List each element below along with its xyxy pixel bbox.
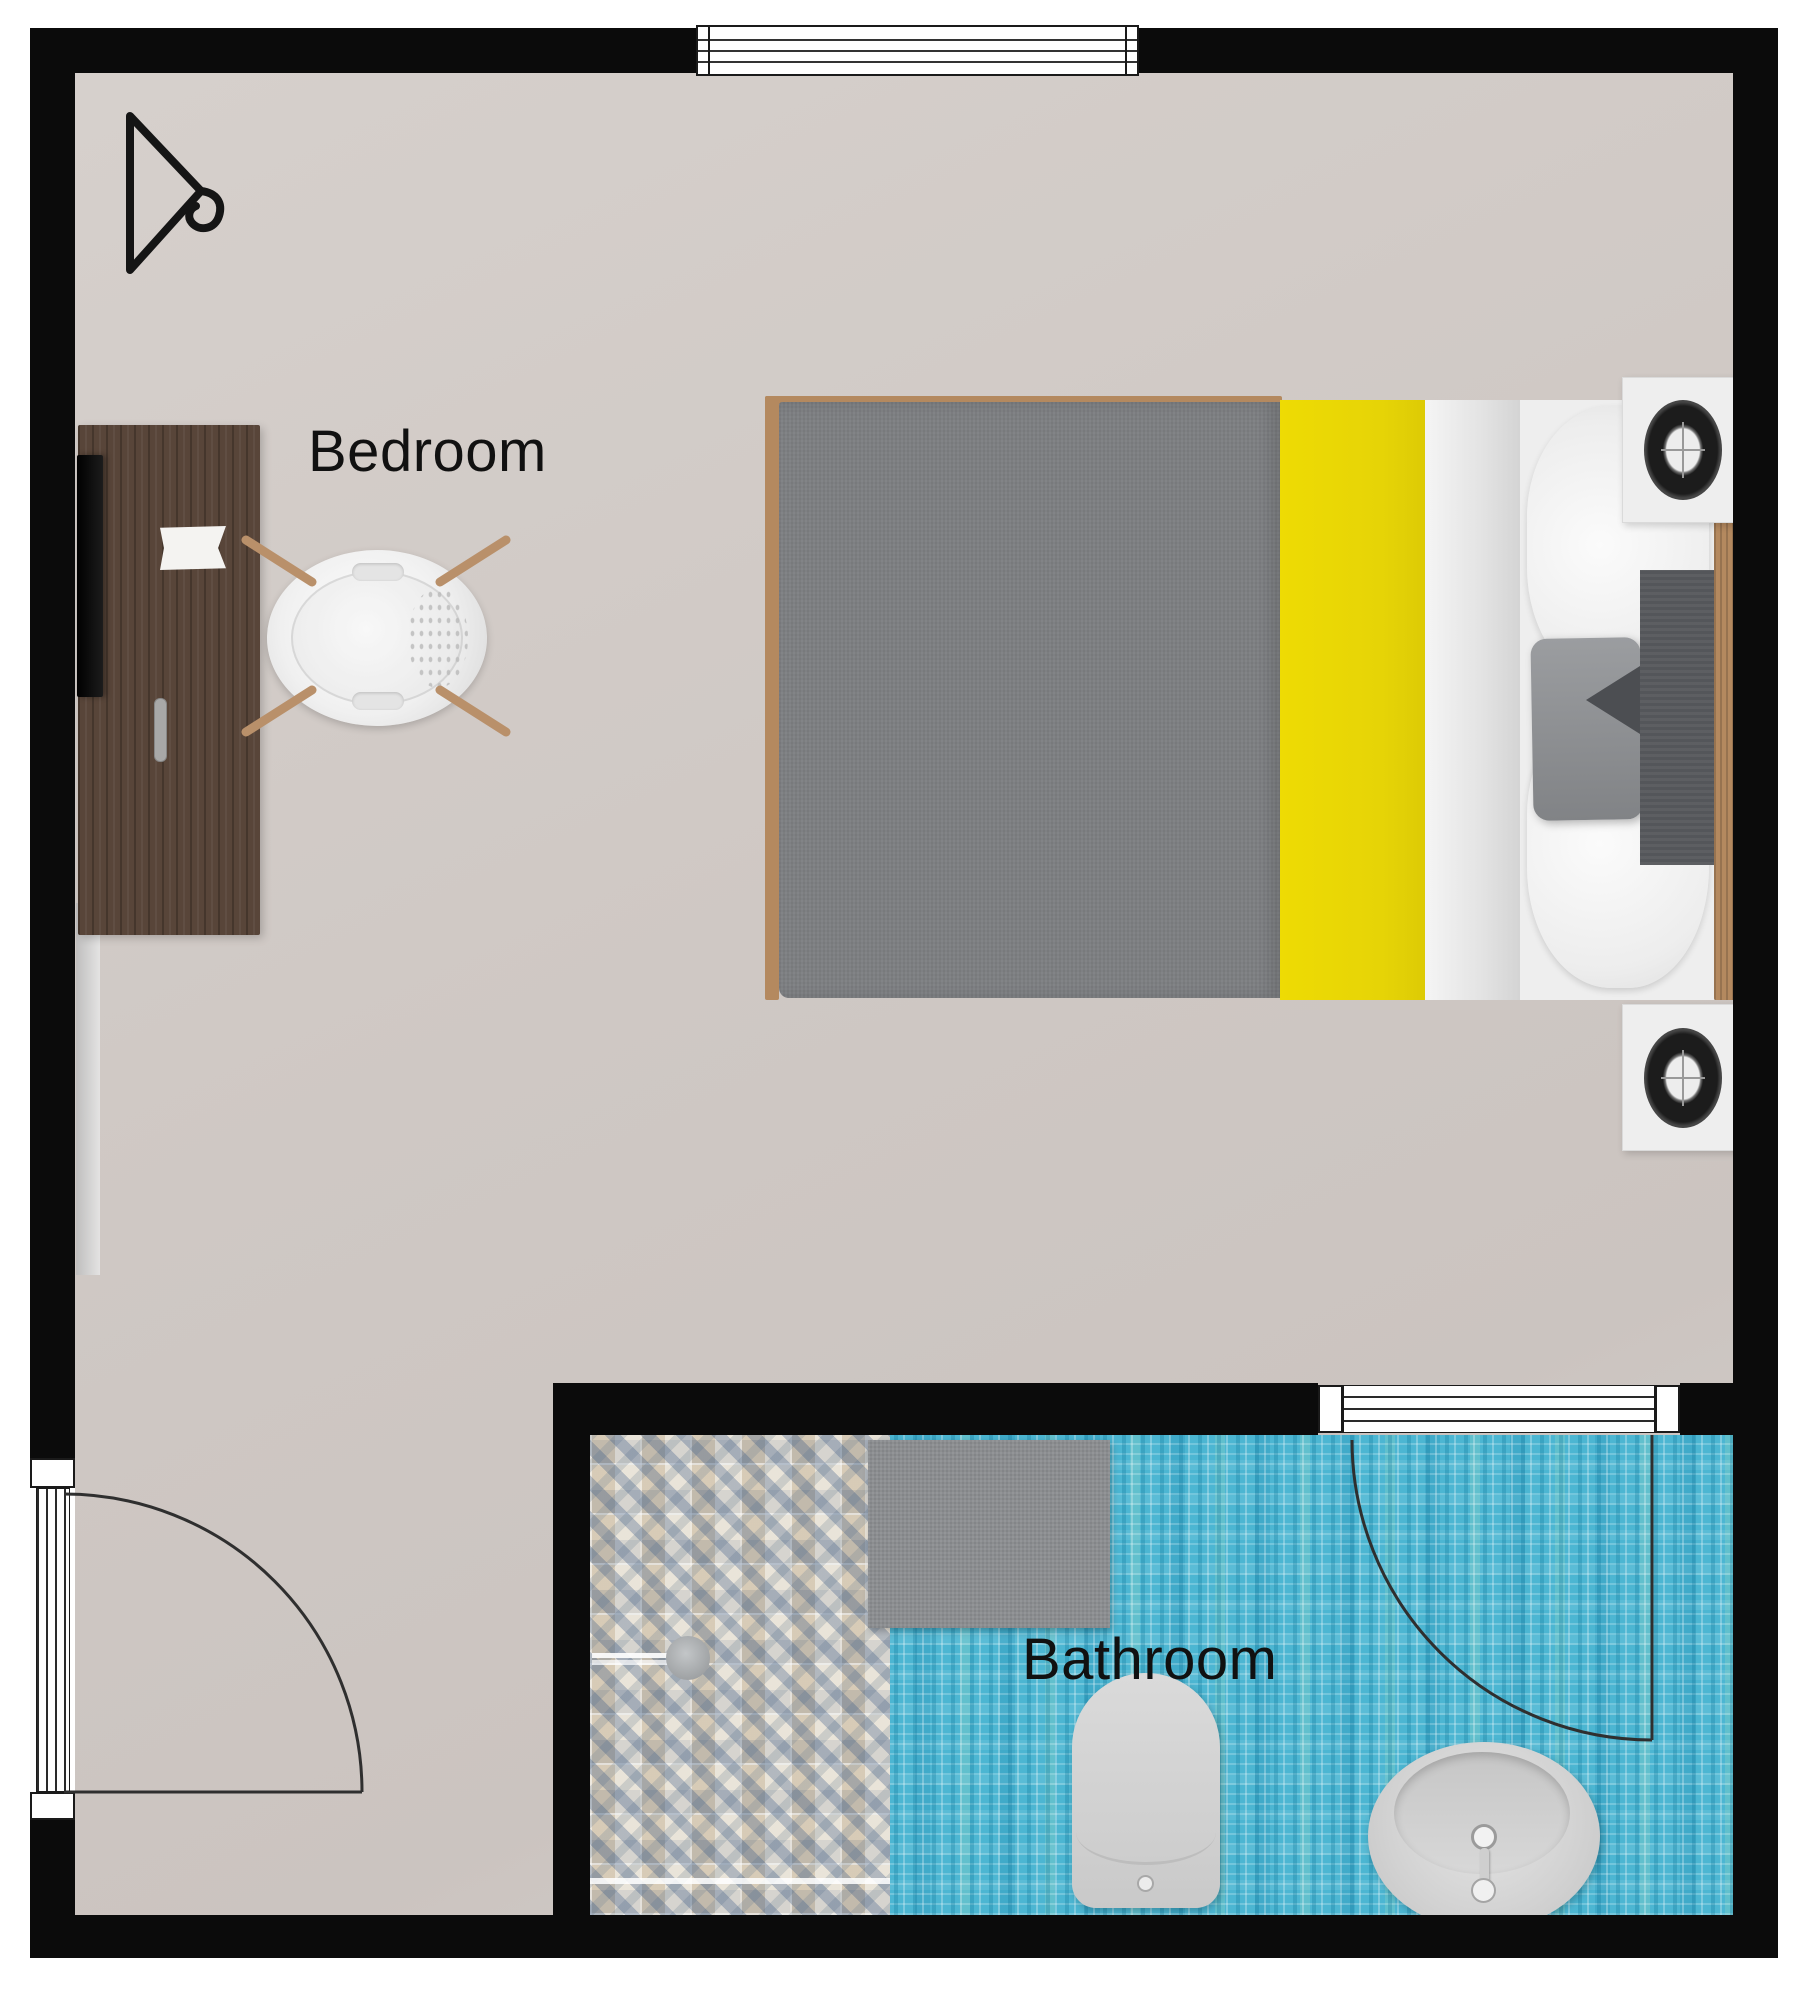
chair-slot-top bbox=[352, 563, 404, 581]
desk bbox=[78, 425, 260, 935]
bedroom-label: Bedroom bbox=[308, 418, 547, 485]
window-cap bbox=[708, 25, 710, 74]
toilet-seam bbox=[1076, 1825, 1216, 1865]
bed-blanket-gray bbox=[779, 402, 1280, 998]
wall-right bbox=[1733, 28, 1778, 1958]
floor-runner-strip bbox=[76, 903, 100, 1275]
bathroom-door-jamb-right bbox=[1655, 1385, 1680, 1433]
bed-frame-left-edge bbox=[765, 396, 779, 1000]
entry-door bbox=[36, 1488, 70, 1792]
wall-top-left-segment bbox=[30, 28, 698, 73]
entry-door-jamb-top bbox=[30, 1458, 75, 1488]
speaker-crosshair-icon bbox=[1661, 1050, 1705, 1106]
toilet bbox=[1072, 1673, 1220, 1908]
shower-drain-icon bbox=[666, 1636, 710, 1680]
chair-leaf-pattern bbox=[408, 588, 468, 688]
desk-paper bbox=[160, 526, 226, 570]
faucet-icon bbox=[1471, 1824, 1497, 1850]
shower-pipe-line bbox=[592, 1653, 670, 1658]
speaker-icon bbox=[1644, 400, 1722, 500]
bathroom-door bbox=[1343, 1385, 1655, 1433]
bathroom-label: Bathroom bbox=[1022, 1626, 1277, 1693]
bathroom-wall-left bbox=[553, 1383, 590, 1915]
bed-runner-dark bbox=[1640, 570, 1714, 865]
shower-tile-area bbox=[590, 1435, 890, 1915]
speaker-crosshair-icon bbox=[1661, 422, 1705, 478]
window-cap bbox=[1125, 25, 1127, 74]
floor-plan: Bedroom Bathroom bbox=[0, 0, 1812, 1996]
faucet-knob bbox=[1471, 1878, 1496, 1903]
window-top bbox=[696, 25, 1139, 76]
speaker-icon bbox=[1644, 1028, 1722, 1128]
wall-tv bbox=[77, 455, 103, 697]
bathroom-wall-top-right-segment bbox=[1680, 1383, 1778, 1435]
bath-mat bbox=[868, 1440, 1110, 1628]
entry-door-jamb-bottom bbox=[30, 1792, 75, 1820]
bed-stripe-yellow bbox=[1280, 400, 1425, 1000]
shower-threshold-line bbox=[590, 1878, 890, 1884]
wall-left bbox=[30, 28, 75, 1460]
bathroom-wall-top-left-segment bbox=[553, 1383, 1318, 1435]
wall-top-right-segment bbox=[1139, 28, 1778, 73]
wall-bottom bbox=[30, 1915, 1778, 1958]
toilet-flush-button bbox=[1137, 1875, 1154, 1892]
desk-handle bbox=[154, 698, 167, 762]
chair-slot-bottom bbox=[352, 692, 404, 710]
bed-sheet-fold bbox=[1425, 400, 1520, 1000]
bed-runner-fold bbox=[1586, 666, 1640, 734]
bathroom-door-jamb-left bbox=[1318, 1385, 1343, 1433]
